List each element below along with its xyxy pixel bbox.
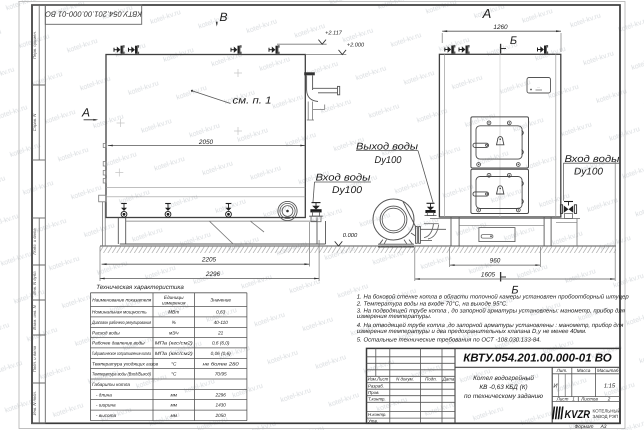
svg-text:Температура воды (Вход/Выход): Температура воды (Вход/Выход) bbox=[92, 372, 151, 377]
svg-text:0,06 (0,6): 0,06 (0,6) bbox=[211, 351, 232, 356]
svg-text:Подп. и дата: Подп. и дата bbox=[32, 228, 37, 255]
svg-text:1:15: 1:15 bbox=[604, 384, 616, 390]
svg-text:2. Температура воды на входе: 2. Температура воды на входе 70°С, на вы… bbox=[356, 301, 508, 308]
svg-text:КОТЕЛЬНЫЙ: КОТЕЛЬНЫЙ bbox=[593, 407, 621, 413]
svg-text:по техническому заданию: по техническому заданию bbox=[464, 393, 543, 400]
svg-text:Номинальная мощность: Номинальная мощность bbox=[92, 309, 147, 314]
svg-text:измерения: измерения bbox=[162, 300, 186, 305]
svg-text:+2.000: +2.000 bbox=[347, 42, 365, 48]
svg-text:Температура уходящих газов: Температура уходящих газов bbox=[92, 361, 159, 366]
svg-text:Лист: Лист bbox=[556, 397, 569, 402]
svg-text:м3/ч: м3/ч bbox=[169, 330, 179, 335]
svg-text:Перв. примен.: Перв. примен. bbox=[32, 31, 37, 59]
svg-text:см. п. 1: см. п. 1 bbox=[233, 95, 272, 106]
svg-text:Котел водогрейный: Котел водогрейный bbox=[473, 375, 534, 382]
svg-text:Инв. N дубл.: Инв. N дубл. bbox=[32, 270, 37, 294]
svg-text:Значение: Значение bbox=[210, 297, 231, 302]
svg-text:КВ -0,63 КБД (К): КВ -0,63 КБД (К) bbox=[479, 384, 527, 391]
svg-text:Наименование показателя: Наименование показателя bbox=[92, 297, 151, 302]
svg-text:Гидравлическое сопротивление к: Гидравлическое сопротивление котла bbox=[92, 351, 151, 356]
svg-text:мм: мм bbox=[171, 392, 178, 397]
svg-text:1: 1 bbox=[572, 397, 575, 402]
svg-text:Листов: Листов bbox=[580, 397, 598, 402]
svg-text:КВТУ.054.201.00.000-01 ВО: КВТУ.054.201.00.000-01 ВО bbox=[463, 352, 612, 364]
svg-text:Формат: Формат bbox=[574, 424, 593, 430]
svg-text:Масса: Масса bbox=[577, 368, 591, 373]
svg-text:Масштаб: Масштаб bbox=[597, 368, 619, 373]
svg-text:Т.контр.: Т.контр. bbox=[368, 396, 386, 401]
svg-text:КВТУ.054.201.00.000-01 ВО: КВТУ.054.201.00.000-01 ВО bbox=[45, 10, 142, 19]
svg-text:измерения температуры и два пр: измерения температуры и два предохраните… bbox=[357, 328, 587, 335]
svg-text:МПа (кгс/см2): МПа (кгс/см2) bbox=[155, 341, 194, 346]
svg-text:Dy100: Dy100 bbox=[375, 155, 403, 166]
svg-text:1605: 1605 bbox=[481, 271, 496, 278]
svg-text:°С: °С bbox=[171, 372, 177, 377]
svg-text:Подп.: Подп. bbox=[425, 377, 437, 382]
svg-text:МПа (кгс/см2): МПа (кгс/см2) bbox=[155, 351, 194, 356]
svg-text:Диапазон рабочего регулировани: Диапазон рабочего регулирования bbox=[91, 320, 151, 325]
svg-text:не более 280: не более 280 bbox=[203, 361, 239, 366]
svg-text:В: В bbox=[219, 10, 227, 24]
svg-text:измерения температуры.: измерения температуры. bbox=[357, 314, 432, 320]
svg-text:0.000: 0.000 bbox=[343, 232, 358, 239]
svg-text:Габариты котла: Габариты котла bbox=[92, 382, 130, 387]
svg-text:Дата: Дата bbox=[442, 377, 455, 382]
svg-text:Пров.: Пров. bbox=[368, 390, 380, 395]
svg-text:2205: 2205 bbox=[201, 257, 217, 264]
svg-text:ЗАВОД РЭП: ЗАВОД РЭП bbox=[593, 414, 619, 419]
svg-text:Справ. N: Справ. N bbox=[32, 113, 37, 131]
svg-text:2: 2 bbox=[607, 397, 611, 402]
svg-text:960: 960 bbox=[490, 257, 501, 264]
svg-text:Рабочее давление воды: Рабочее давление воды bbox=[92, 341, 145, 346]
svg-text:мм: мм bbox=[171, 403, 178, 408]
svg-text:- высота: - высота bbox=[92, 413, 116, 418]
svg-text:А3: А3 bbox=[600, 424, 607, 430]
svg-text:- длина: - длина bbox=[92, 392, 112, 397]
svg-text:...: ... bbox=[537, 84, 540, 89]
svg-text:Лит.: Лит. bbox=[556, 368, 568, 373]
svg-text:1260: 1260 bbox=[493, 24, 508, 31]
svg-text:Инв. N подл.: Инв. N подл. bbox=[32, 391, 37, 415]
svg-text:°С: °С bbox=[171, 361, 177, 366]
svg-text:5. Остальные технические треб: 5. Остальные технические требования по О… bbox=[357, 337, 541, 344]
svg-text:2296: 2296 bbox=[205, 271, 221, 278]
svg-text:2050: 2050 bbox=[214, 413, 226, 418]
svg-text:Разраб.: Разраб. bbox=[368, 383, 384, 388]
svg-text:+2.117: +2.117 bbox=[325, 30, 343, 36]
svg-text:- ширина: - ширина bbox=[92, 403, 116, 408]
svg-text:%: % bbox=[172, 320, 176, 325]
svg-text:21: 21 bbox=[217, 330, 224, 335]
svg-text:1430: 1430 bbox=[215, 403, 226, 408]
svg-text:Расход воды: Расход воды bbox=[92, 330, 120, 335]
svg-text:Взам. инв. N: Взам. инв. N bbox=[32, 304, 37, 329]
svg-text:Dy100: Dy100 bbox=[574, 167, 604, 178]
svg-text:Dy100: Dy100 bbox=[332, 185, 363, 196]
svg-text:Подп. и дата: Подп. и дата bbox=[32, 345, 37, 372]
svg-text:1. На боковой стенке котла в: 1. На боковой стенке котла в области топ… bbox=[357, 294, 630, 301]
svg-text:N докум.: N докум. bbox=[396, 377, 414, 382]
svg-text:40-110: 40-110 bbox=[214, 320, 229, 325]
svg-text:А: А bbox=[81, 106, 90, 120]
svg-text:KVZR: KVZR bbox=[565, 409, 591, 421]
svg-text:Утв.: Утв. bbox=[368, 418, 378, 423]
svg-text:0,6 (6,0): 0,6 (6,0) bbox=[212, 341, 230, 346]
svg-text:70/95: 70/95 bbox=[215, 372, 227, 377]
svg-text:2296: 2296 bbox=[214, 392, 226, 397]
svg-text:0,63: 0,63 bbox=[216, 309, 226, 314]
svg-text:А: А bbox=[482, 6, 492, 21]
svg-text:Изм.Лист: Изм.Лист bbox=[368, 377, 389, 382]
svg-text:Б: Б bbox=[510, 35, 517, 47]
svg-text:2050: 2050 bbox=[198, 139, 214, 146]
svg-text:МВт: МВт bbox=[168, 309, 179, 314]
svg-text:Н.контр.: Н.контр. bbox=[368, 412, 387, 417]
svg-text:Единицы: Единицы bbox=[164, 295, 184, 300]
svg-text:Техническая характеристика: Техническая характеристика bbox=[96, 284, 184, 291]
svg-text:мм: мм bbox=[171, 413, 178, 418]
